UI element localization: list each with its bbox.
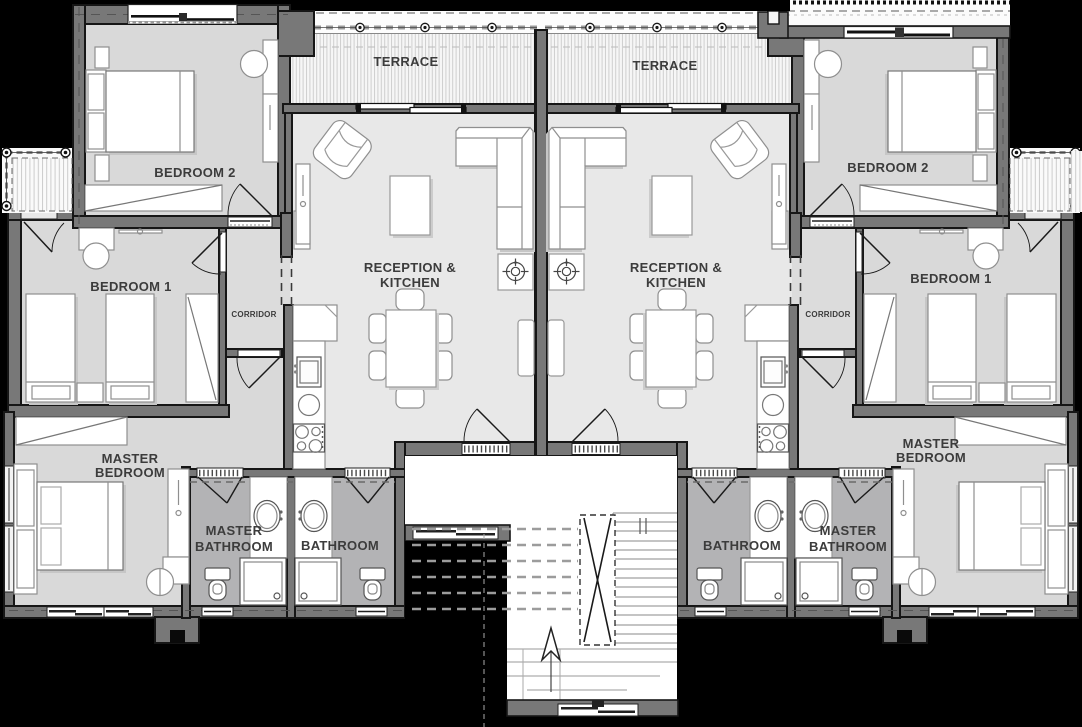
svg-text:BATHROOM: BATHROOM — [703, 538, 781, 553]
svg-text:MASTER: MASTER — [206, 523, 263, 538]
svg-text:CORRIDOR: CORRIDOR — [805, 310, 850, 319]
svg-text:TERRACE: TERRACE — [633, 58, 698, 73]
svg-text:MASTER: MASTER — [102, 451, 159, 466]
svg-text:BATHROOM: BATHROOM — [301, 538, 379, 553]
svg-text:KITCHEN: KITCHEN — [646, 275, 706, 290]
svg-text:RECEPTION &: RECEPTION & — [364, 260, 456, 275]
svg-text:BATHROOM: BATHROOM — [809, 539, 887, 554]
svg-text:TERRACE: TERRACE — [374, 54, 439, 69]
svg-text:BEDROOM: BEDROOM — [896, 450, 966, 465]
svg-text:BEDROOM 1: BEDROOM 1 — [910, 271, 991, 286]
svg-text:MASTER: MASTER — [903, 436, 960, 451]
svg-text:BEDROOM: BEDROOM — [95, 465, 165, 480]
svg-text:RECEPTION &: RECEPTION & — [630, 260, 722, 275]
svg-text:MASTER: MASTER — [820, 523, 877, 538]
svg-text:CORRIDOR: CORRIDOR — [231, 310, 276, 319]
svg-text:BATHROOM: BATHROOM — [195, 539, 273, 554]
svg-text:BEDROOM 2: BEDROOM 2 — [154, 165, 235, 180]
svg-text:BEDROOM 1: BEDROOM 1 — [90, 279, 171, 294]
svg-text:KITCHEN: KITCHEN — [380, 275, 440, 290]
svg-text:BEDROOM 2: BEDROOM 2 — [847, 160, 928, 175]
